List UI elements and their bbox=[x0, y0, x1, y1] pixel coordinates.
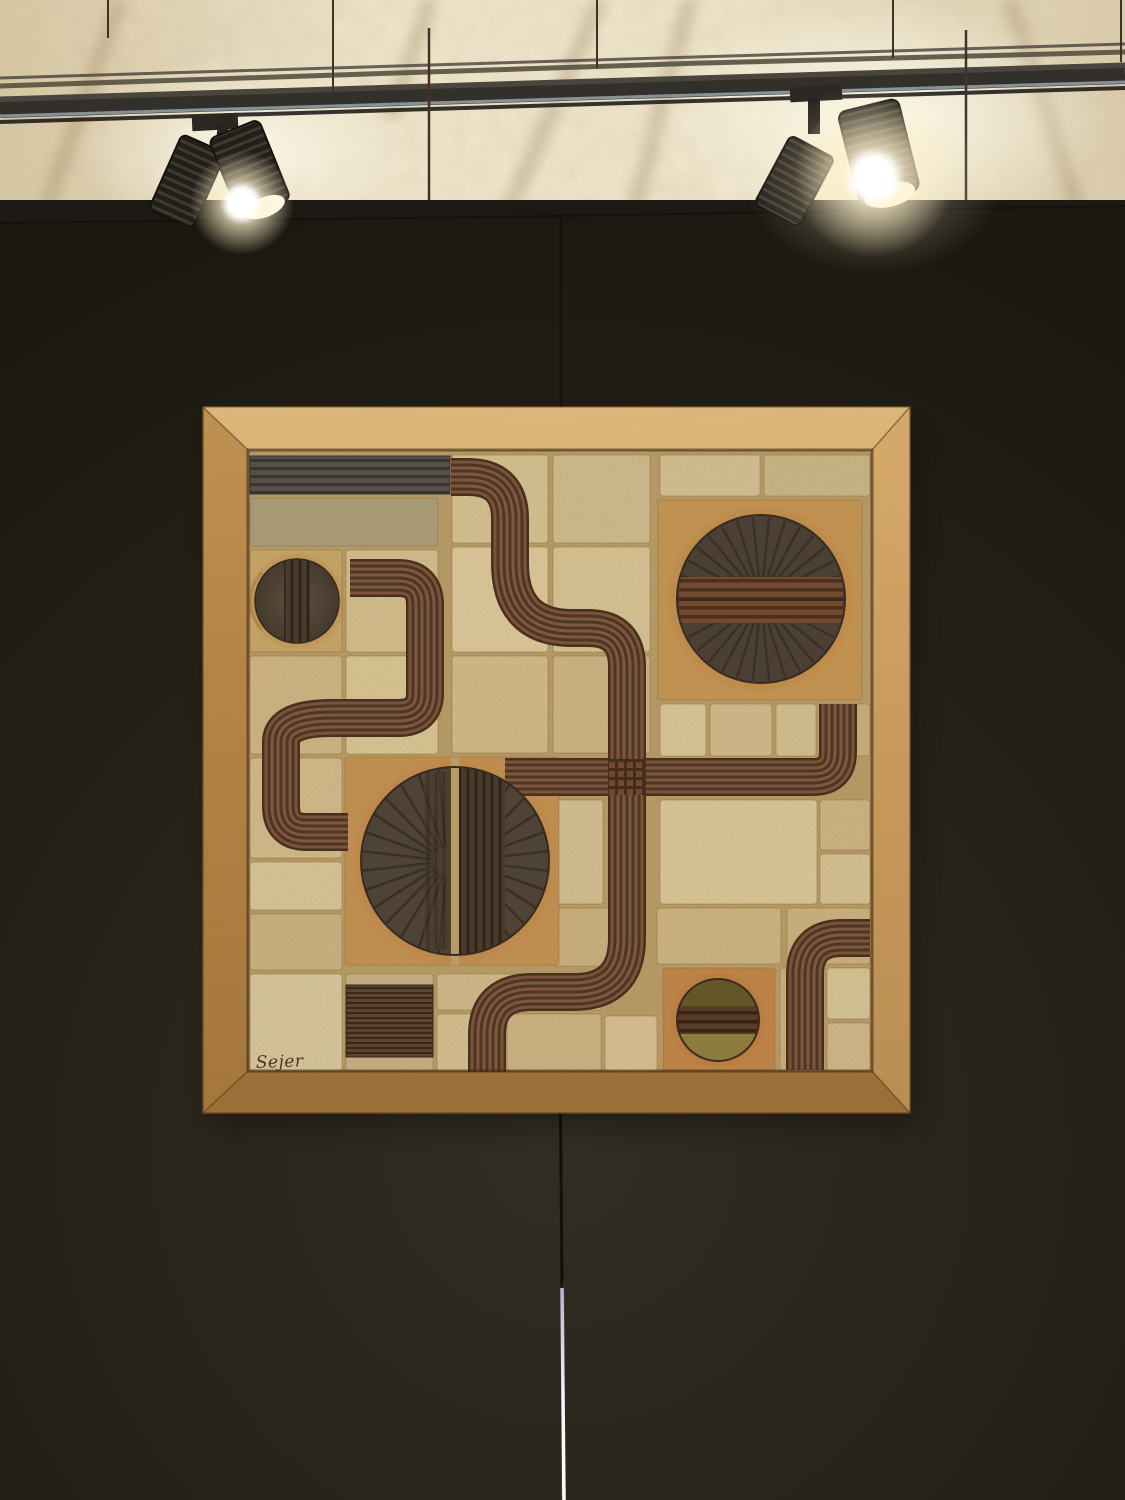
artist-signature: Sejer bbox=[255, 1051, 304, 1073]
gallery-photo: Sejer bbox=[0, 0, 1125, 1500]
frame-right-face bbox=[872, 407, 910, 1113]
wall-seam-bottom bbox=[561, 1112, 563, 1288]
spotlight-cluster-right bbox=[744, 85, 1004, 275]
circle-center-seam bbox=[451, 757, 459, 965]
frame-bottom-face bbox=[203, 1071, 910, 1113]
frame-top-face bbox=[203, 407, 910, 450]
lamp-glow-core bbox=[224, 185, 260, 221]
frame-left-face bbox=[203, 407, 248, 1113]
track-mount bbox=[192, 113, 239, 131]
cross-waffle bbox=[609, 759, 645, 795]
lamp-glow-core bbox=[849, 152, 899, 202]
ribbed-bar-tile bbox=[250, 456, 450, 494]
artwork: Sejer bbox=[203, 407, 910, 1113]
relief-circle-olive bbox=[677, 979, 759, 1061]
seam-light-leak bbox=[562, 1288, 564, 1500]
ribbed-square-tile bbox=[346, 985, 433, 1057]
relief-circle-large-right bbox=[677, 515, 845, 683]
